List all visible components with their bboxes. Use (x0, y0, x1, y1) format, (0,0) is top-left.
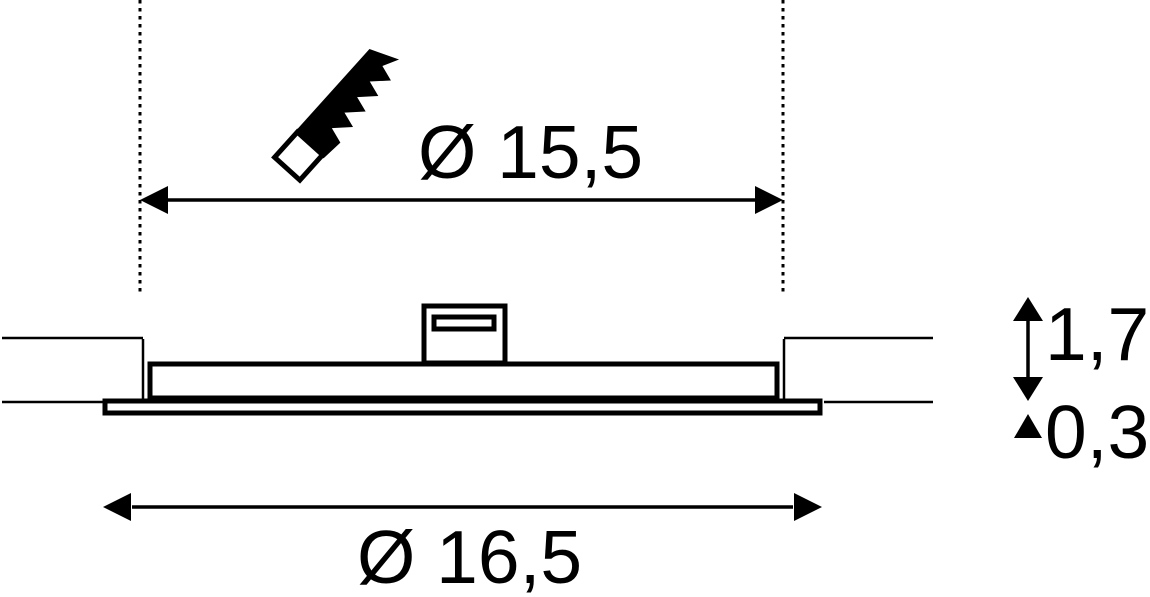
cutout-diameter-dimension: Ø 15,5 (140, 110, 783, 214)
dimension-drawing: Ø 15,5 1,7 (0, 0, 1150, 597)
driver-box-slot (434, 317, 494, 329)
saw-blade (295, 40, 408, 160)
fixture-flange (105, 401, 820, 413)
ceiling-section-left (2, 338, 143, 402)
left-arrowhead-icon (103, 493, 131, 521)
recess-depth-label: 1,7 (1045, 292, 1149, 376)
outer-diameter-label: Ø 16,5 (357, 515, 582, 597)
left-arrowhead-icon (140, 186, 168, 214)
cutout-diameter-label: Ø 15,5 (418, 110, 643, 194)
ceiling-section-right (784, 338, 933, 402)
right-arrowhead-icon (755, 186, 783, 214)
up-arrowhead-icon (1013, 297, 1043, 321)
down-arrowhead-icon (1013, 377, 1043, 401)
flange-thickness-label: 0,3 (1045, 390, 1149, 474)
right-arrowhead-icon (794, 493, 822, 521)
outer-diameter-dimension: Ø 16,5 (103, 493, 822, 597)
recess-depth-dimension: 1,7 (1013, 292, 1149, 401)
fixture-dimension-diagram: Ø 15,5 1,7 (0, 0, 1150, 597)
fixture-body (150, 364, 777, 398)
fixture-cross-section (105, 306, 820, 413)
flange-thickness-dimension: 0,3 (1014, 390, 1149, 474)
saw-icon (273, 40, 408, 183)
up-arrowhead-icon (1014, 414, 1042, 438)
